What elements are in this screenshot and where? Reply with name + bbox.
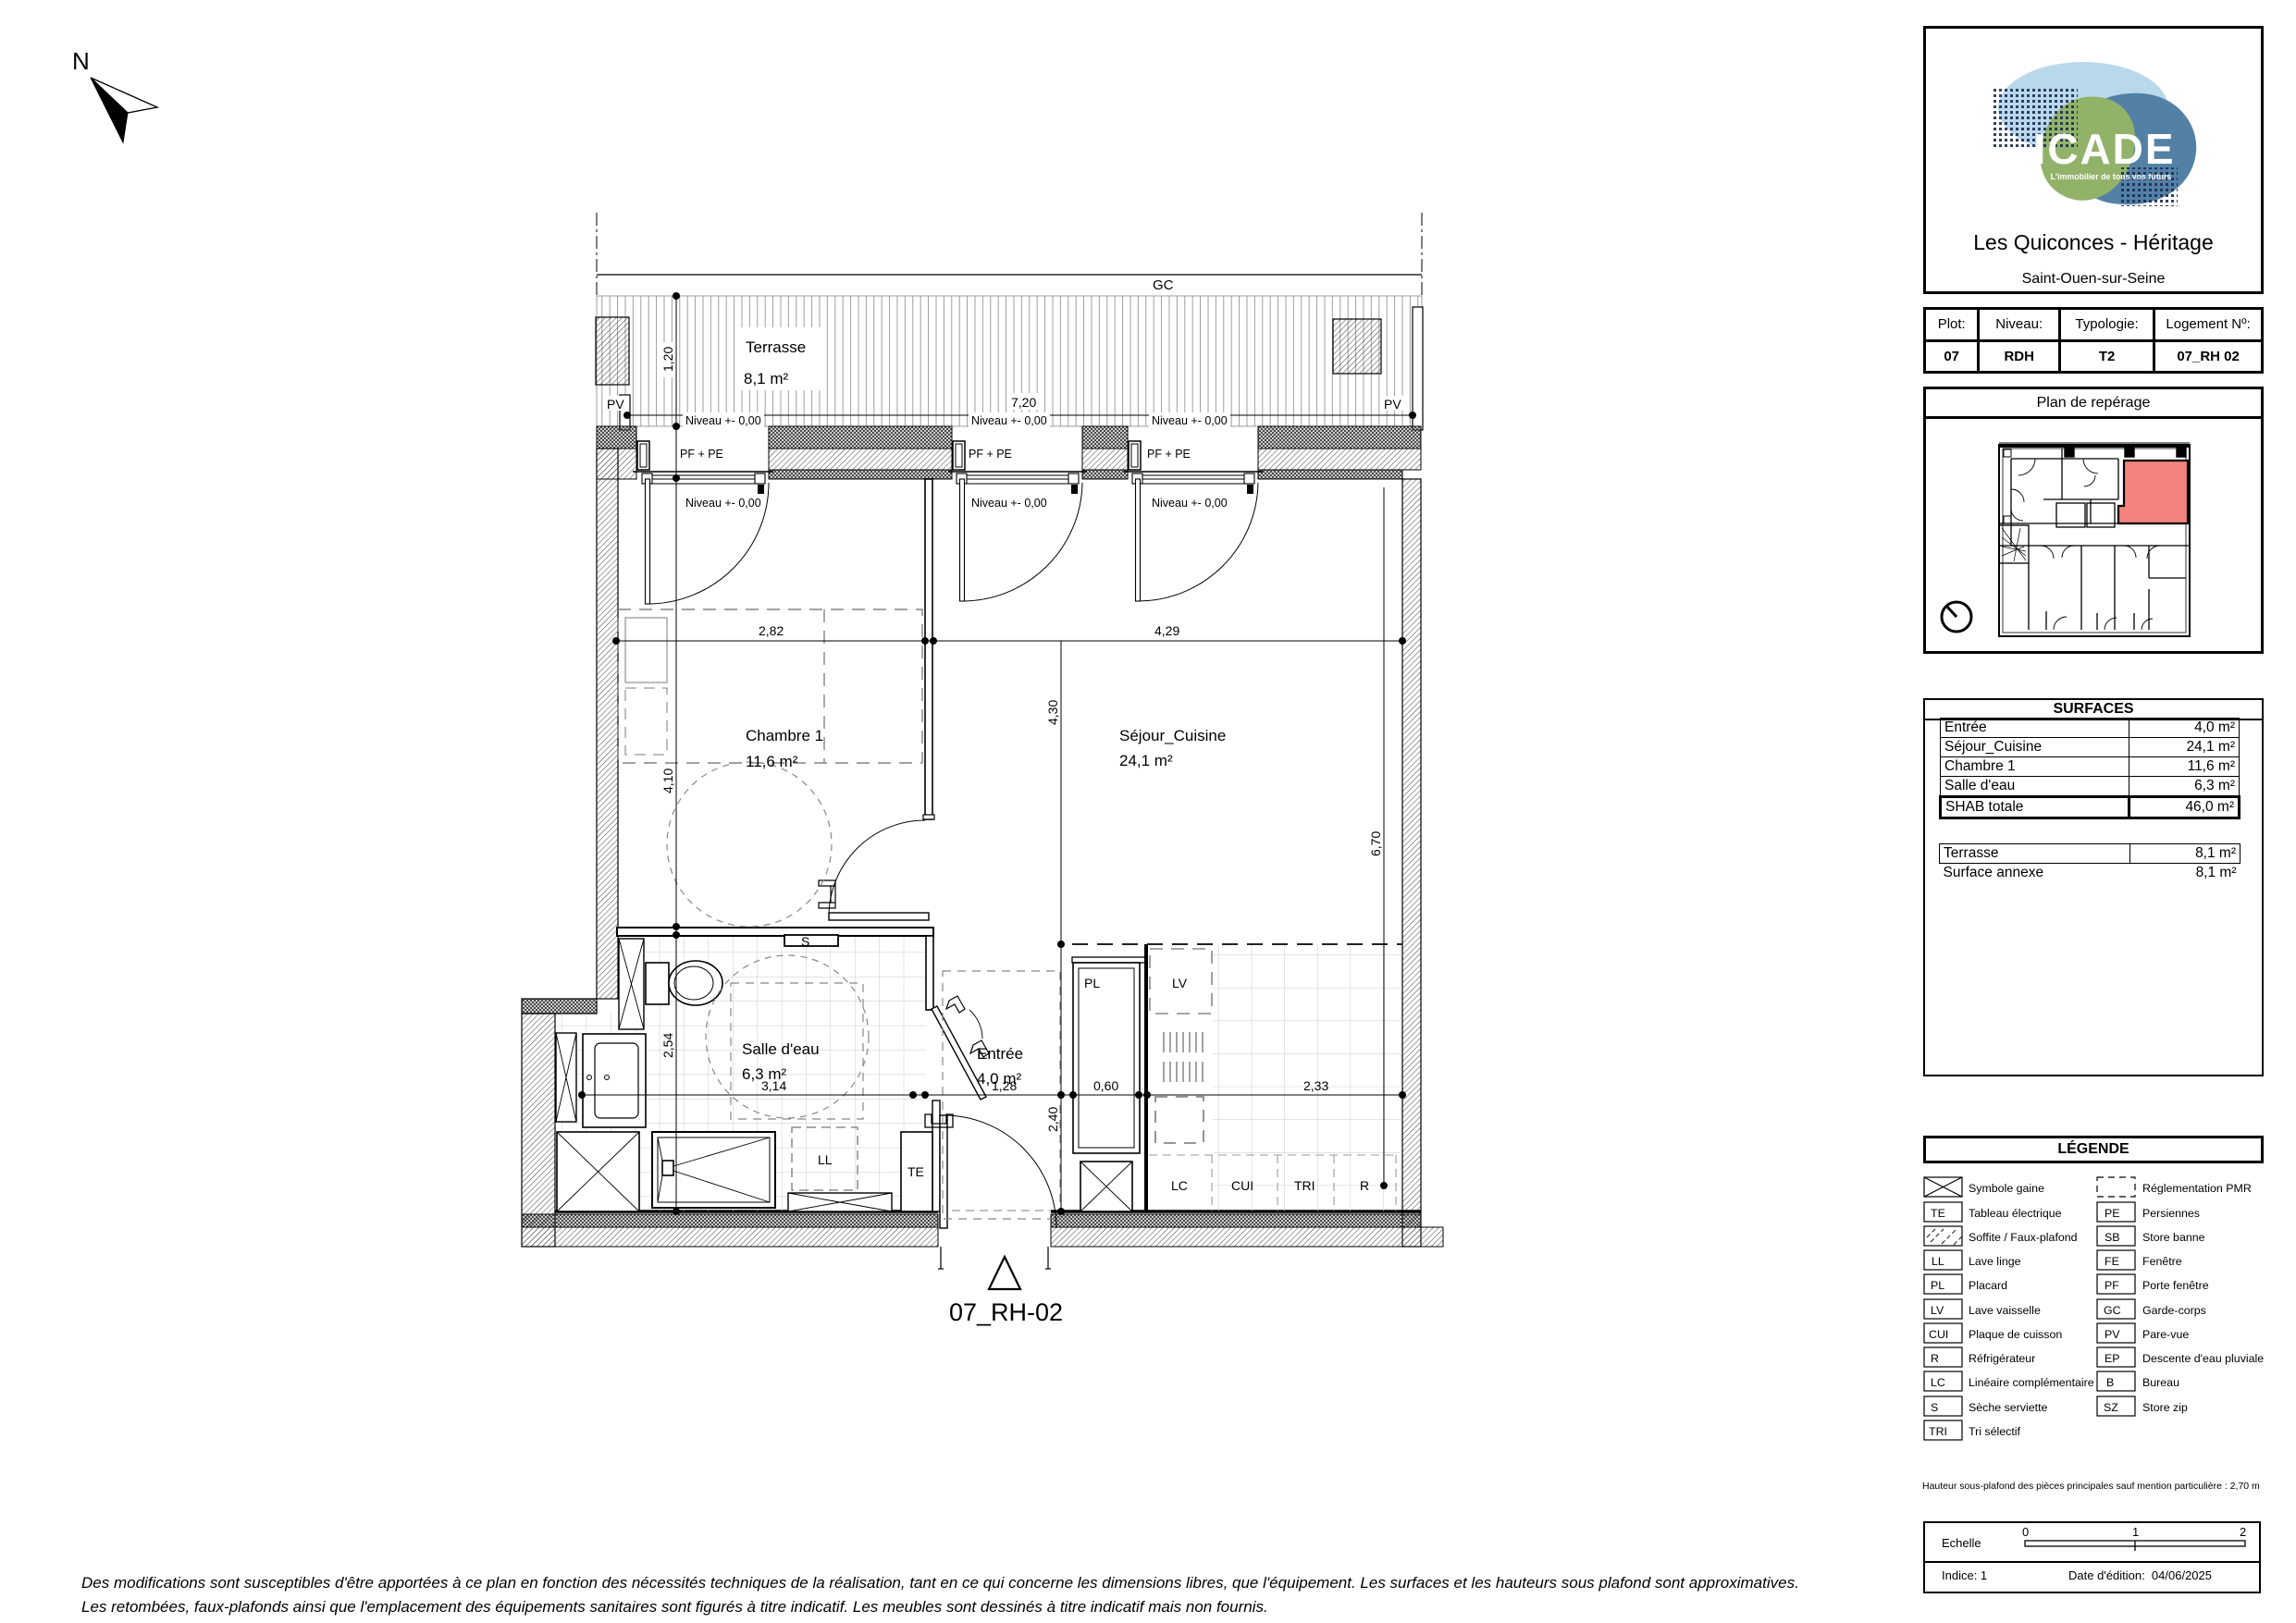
svg-text:TRI: TRI: [1294, 1178, 1315, 1193]
svg-text:24,1 m²: 24,1 m²: [1119, 752, 1173, 769]
svg-text:07_RH-02: 07_RH-02: [949, 1298, 1063, 1326]
svg-text:PF + PE: PF + PE: [680, 448, 723, 461]
svg-text:S: S: [801, 934, 809, 949]
svg-text:Garde-corps: Garde-corps: [2142, 1304, 2206, 1317]
svg-text:TE: TE: [907, 1164, 924, 1179]
svg-text:Fenêtre: Fenêtre: [2142, 1255, 2182, 1268]
svg-text:2,54: 2,54: [660, 1033, 675, 1058]
svg-text:1,20: 1,20: [660, 347, 675, 372]
svg-text:Niveau +- 0,00: Niveau +- 0,00: [685, 414, 761, 427]
svg-text:TE: TE: [1931, 1207, 1945, 1220]
svg-text:CUI: CUI: [1231, 1178, 1253, 1193]
svg-text:S: S: [1931, 1401, 1938, 1414]
svg-text:PV: PV: [1384, 397, 1401, 412]
svg-text:Tableau électrique: Tableau électrique: [1969, 1207, 2062, 1220]
svg-text:Persiennes: Persiennes: [2142, 1207, 2200, 1220]
svg-text:Séjour_Cuisine: Séjour_Cuisine: [1119, 727, 1226, 744]
svg-text:B: B: [2106, 1376, 2114, 1389]
svg-text:PF: PF: [2105, 1279, 2119, 1292]
svg-text:11,6 m²: 11,6 m²: [746, 753, 798, 770]
svg-text:1: 1: [2132, 1525, 2139, 1539]
svg-text:PE: PE: [2105, 1207, 2120, 1220]
svg-text:Salle d'eau: Salle d'eau: [742, 1040, 820, 1058]
svg-text:Plaque de cuisson: Plaque de cuisson: [1969, 1328, 2062, 1341]
svg-text:2,82: 2,82: [759, 623, 784, 638]
svg-text:Tri sélectif: Tri sélectif: [1969, 1425, 2021, 1438]
svg-text:Soffite / Faux-plafond: Soffite / Faux-plafond: [1969, 1231, 2078, 1244]
svg-text:Bureau: Bureau: [2142, 1376, 2179, 1389]
svg-text:0,60: 0,60: [1093, 1078, 1118, 1093]
svg-text:Niveau +- 0,00: Niveau +- 0,00: [971, 497, 1047, 510]
svg-text:PV: PV: [2105, 1328, 2120, 1341]
svg-text:4,29: 4,29: [1154, 623, 1179, 638]
svg-text:2: 2: [2240, 1525, 2246, 1539]
svg-text:PV: PV: [607, 397, 624, 412]
svg-text:CUI: CUI: [1929, 1328, 1948, 1341]
svg-text:Chambre 1: Chambre 1: [746, 727, 823, 744]
svg-text:FE: FE: [2105, 1255, 2119, 1268]
svg-text:Niveau +- 0,00: Niveau +- 0,00: [1152, 414, 1228, 427]
svg-text:LC: LC: [1171, 1178, 1188, 1193]
svg-text:SB: SB: [2105, 1231, 2120, 1244]
svg-text:Terrasse: Terrasse: [746, 338, 806, 356]
svg-text:EP: EP: [2105, 1352, 2120, 1365]
svg-text:ICADE: ICADE: [2033, 125, 2175, 173]
svg-text:LV: LV: [1172, 976, 1188, 990]
svg-text:4,30: 4,30: [1045, 700, 1060, 725]
svg-text:PF + PE: PF + PE: [1147, 448, 1191, 461]
svg-text:Store banne: Store banne: [2142, 1231, 2205, 1244]
svg-text:L'immobilier de tous vos futur: L'immobilier de tous vos futurs: [2051, 172, 2172, 181]
svg-text:GC: GC: [2104, 1304, 2121, 1317]
svg-text:GC: GC: [1153, 277, 1174, 293]
svg-text:LV: LV: [1931, 1304, 1944, 1317]
svg-text:Sèche serviette: Sèche serviette: [1969, 1401, 2048, 1414]
svg-text:8,1 m²: 8,1 m²: [744, 370, 789, 387]
svg-text:Placard: Placard: [1969, 1279, 2007, 1292]
svg-text:1,28: 1,28: [992, 1078, 1017, 1093]
svg-text:Porte fenêtre: Porte fenêtre: [2142, 1279, 2209, 1292]
svg-text:Linéaire complémentaire: Linéaire complémentaire: [1969, 1376, 2094, 1389]
svg-text:Réglementation PMR: Réglementation PMR: [2142, 1182, 2252, 1195]
svg-text:PL: PL: [1931, 1279, 1944, 1292]
svg-text:PL: PL: [1084, 976, 1100, 990]
svg-text:LC: LC: [1931, 1376, 1945, 1389]
svg-text:Symbole gaine: Symbole gaine: [1969, 1182, 2044, 1195]
svg-text:Niveau +- 0,00: Niveau +- 0,00: [685, 497, 761, 510]
svg-text:SZ: SZ: [2104, 1401, 2118, 1414]
svg-text:R: R: [1931, 1352, 1939, 1365]
svg-text:TRI: TRI: [1929, 1425, 1947, 1438]
svg-text:R: R: [1360, 1178, 1369, 1193]
svg-text:4,10: 4,10: [660, 768, 675, 793]
svg-text:N: N: [72, 47, 90, 75]
svg-text:Lave vaisselle: Lave vaisselle: [1969, 1304, 2041, 1317]
svg-text:2,40: 2,40: [1045, 1107, 1060, 1132]
svg-text:LL: LL: [818, 1152, 833, 1167]
svg-text:Descente d'eau pluviale: Descente d'eau pluviale: [2142, 1352, 2264, 1365]
svg-text:Pare-vue: Pare-vue: [2142, 1328, 2189, 1341]
svg-text:Réfrigérateur: Réfrigérateur: [1969, 1352, 2035, 1365]
svg-text:3,14: 3,14: [761, 1078, 786, 1093]
svg-text:0: 0: [2022, 1525, 2029, 1539]
svg-text:Niveau +- 0,00: Niveau +- 0,00: [971, 414, 1047, 427]
svg-text:Store zip: Store zip: [2142, 1401, 2188, 1414]
svg-text:LL: LL: [1932, 1255, 1944, 1268]
svg-text:7,20: 7,20: [1011, 395, 1036, 410]
svg-text:Niveau +- 0,00: Niveau +- 0,00: [1152, 497, 1228, 510]
svg-text:PF + PE: PF + PE: [969, 448, 1012, 461]
svg-text:Lave linge: Lave linge: [1969, 1255, 2021, 1268]
svg-text:2,33: 2,33: [1303, 1078, 1328, 1093]
svg-text:6,70: 6,70: [1368, 831, 1383, 856]
svg-text:Entrée: Entrée: [977, 1045, 1023, 1063]
